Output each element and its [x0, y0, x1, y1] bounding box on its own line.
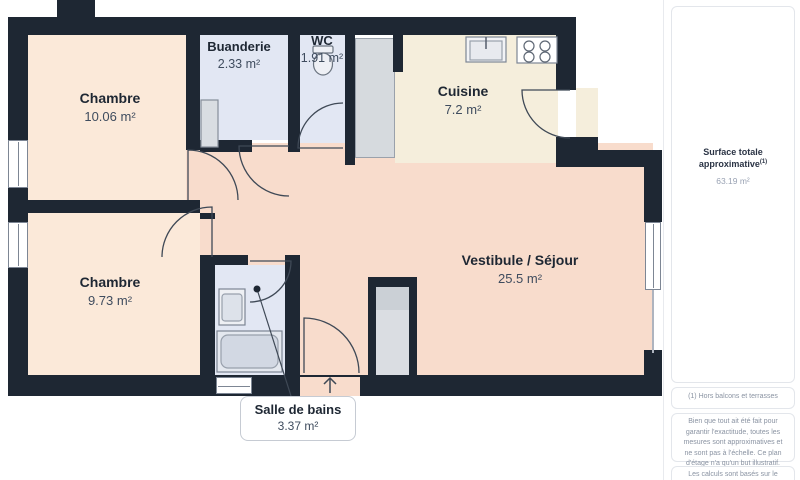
- calculation-note-card: Les calculs sont basés sur le standard: [671, 466, 795, 480]
- stove-icon: [517, 37, 557, 63]
- surface-total-label: Surface totale approximative(1): [672, 147, 794, 170]
- footnote-card: (1) Hors balcons et terrasses: [671, 387, 795, 409]
- door-arc-chambre1: [188, 150, 238, 200]
- label-chambre-2: Chambre 9.73 m²: [80, 274, 141, 308]
- bath-callout: Salle de bains 3.37 m²: [240, 396, 356, 441]
- label-wc: WC 1.91 m²: [301, 33, 343, 65]
- door-arc-balcony: [522, 90, 570, 138]
- entrance-arrow-icon: [324, 378, 336, 393]
- label-cuisine: Cuisine 7.2 m²: [438, 83, 489, 117]
- label-chambre-1: Chambre 10.06 m²: [80, 90, 141, 124]
- door-arc-buanderie: [239, 146, 289, 196]
- info-sidebar: Surface totale approximative(1) 63.19 m²…: [663, 0, 800, 480]
- door-arc-wc: [298, 103, 343, 148]
- footnote-ref: (1): [760, 159, 767, 165]
- kitchen-sink-icon: [466, 37, 506, 62]
- label-buanderie: Buanderie 2.33 m²: [207, 39, 271, 71]
- door-arc-entrance: [304, 318, 359, 373]
- door-arc-chambre2: [162, 207, 212, 257]
- surface-total-card: Surface totale approximative(1) 63.19 m²: [671, 6, 795, 383]
- disclaimer-text: Bien que tout ait été fait pour garantir…: [672, 414, 794, 473]
- washer-icon: [201, 100, 218, 147]
- footnote-text: (1) Hors balcons et terrasses: [672, 388, 794, 407]
- calculation-note-text: Les calculs sont basés sur le standard: [672, 467, 794, 480]
- bath-sink-icon: [219, 289, 245, 325]
- disclaimer-card: Bien que tout ait été fait pour garantir…: [671, 413, 795, 462]
- surface-total-value: 63.19 m²: [672, 176, 794, 186]
- label-vestibule-sejour: Vestibule / Séjour 25.5 m²: [462, 252, 579, 286]
- door-arc-bath: [250, 261, 291, 302]
- floor-plan-page: Chambre 10.06 m² Buanderie 2.33 m² WC 1.…: [0, 0, 800, 480]
